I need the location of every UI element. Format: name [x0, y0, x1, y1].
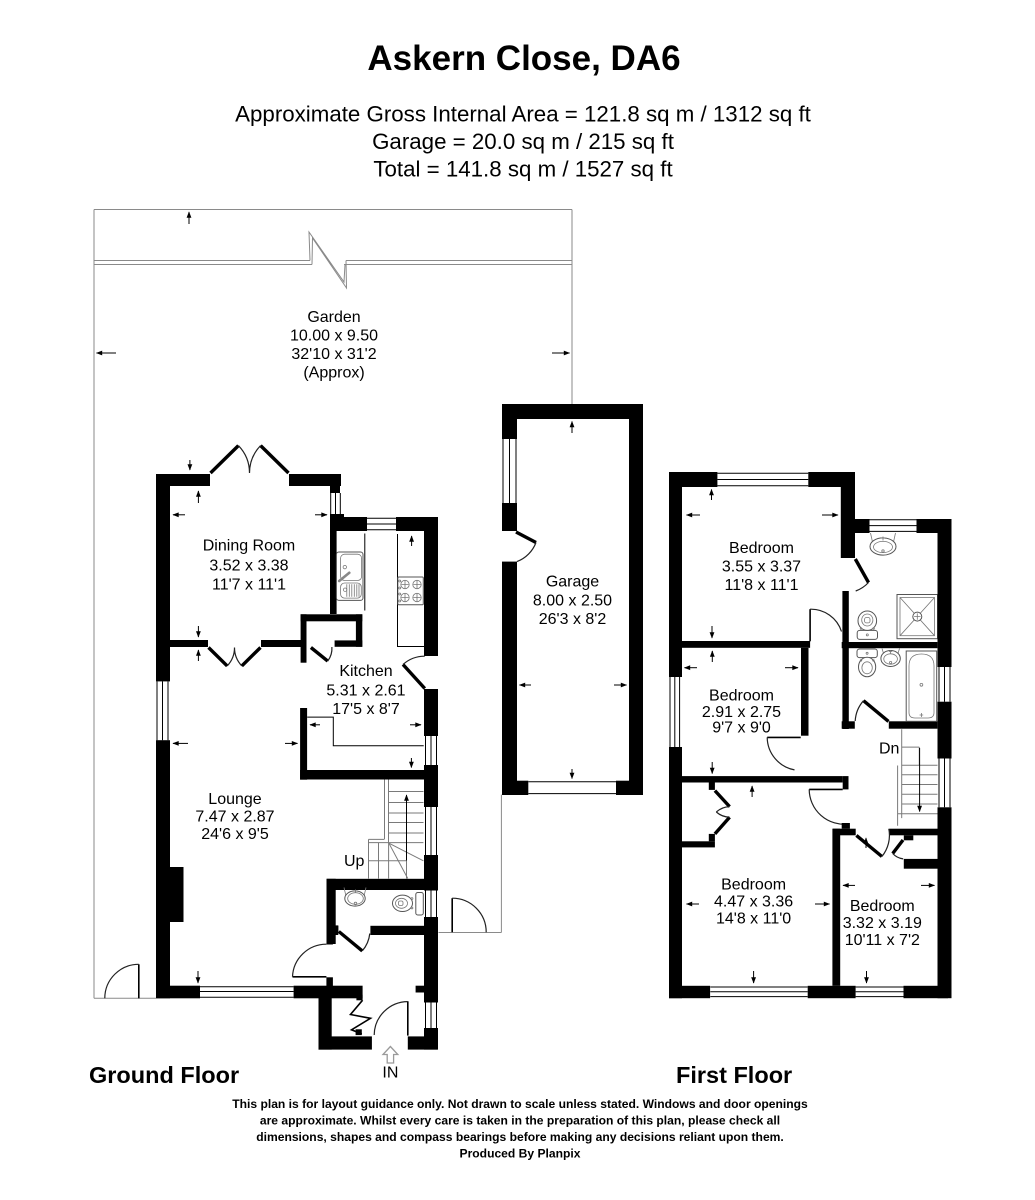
svg-text:17'5 x 8'7: 17'5 x 8'7 [332, 701, 400, 718]
svg-text:Garage: Garage [546, 574, 599, 591]
svg-text:Bedroom: Bedroom [721, 876, 786, 893]
svg-text:3.55 x 3.37: 3.55 x 3.37 [722, 558, 801, 575]
svg-text:Produced By Planpix: Produced By Planpix [460, 1147, 581, 1161]
svg-text:Lounge: Lounge [208, 791, 261, 808]
svg-text:8.00 x 2.50: 8.00 x 2.50 [533, 593, 612, 610]
svg-text:dimensions, shapes and compass: dimensions, shapes and compass bearings … [256, 1130, 784, 1144]
svg-text:First Floor: First Floor [676, 1062, 792, 1088]
svg-text:3.32 x 3.19: 3.32 x 3.19 [843, 915, 922, 932]
svg-text:Total = 141.8 sq m / 1527 sq f: Total = 141.8 sq m / 1527 sq ft [373, 157, 673, 182]
svg-text:11'8 x 11'1: 11'8 x 11'1 [724, 577, 798, 594]
svg-text:7.47 x 2.87: 7.47 x 2.87 [195, 809, 274, 826]
svg-text:Bedroom: Bedroom [850, 898, 915, 915]
svg-text:Dn: Dn [879, 741, 899, 758]
svg-text:9'7 x 9'0: 9'7 x 9'0 [712, 720, 771, 737]
svg-text:24'6 x 9'5: 24'6 x 9'5 [201, 826, 269, 843]
svg-text:Bedroom: Bedroom [709, 688, 774, 705]
svg-text:Garage = 20.0 sq m / 215 sq ft: Garage = 20.0 sq m / 215 sq ft [372, 129, 675, 154]
svg-text:are approximate. Whilst every: are approximate. Whilst every care is ta… [260, 1114, 780, 1128]
svg-text:(Approx): (Approx) [303, 365, 364, 382]
svg-text:Garden: Garden [307, 309, 360, 326]
svg-text:IN: IN [382, 1065, 398, 1082]
svg-text:32'10 x 31'2: 32'10 x 31'2 [291, 346, 376, 363]
svg-text:10'11 x 7'2: 10'11 x 7'2 [845, 932, 920, 949]
svg-text:Askern Close, DA6: Askern Close, DA6 [367, 39, 680, 78]
svg-text:This plan is for layout guidan: This plan is for layout guidance only. N… [232, 1097, 808, 1111]
svg-text:5.31 x 2.61: 5.31 x 2.61 [326, 683, 405, 700]
svg-text:Up: Up [344, 853, 365, 870]
svg-text:Ground Floor: Ground Floor [89, 1062, 239, 1088]
svg-text:Bedroom: Bedroom [729, 540, 794, 557]
svg-text:11'7 x 11'1: 11'7 x 11'1 [212, 577, 286, 594]
svg-text:Dining Room: Dining Room [203, 538, 295, 555]
svg-text:Approximate Gross Internal Are: Approximate Gross Internal Area = 121.8 … [235, 102, 811, 127]
svg-text:14'8 x 11'0: 14'8 x 11'0 [716, 910, 791, 927]
svg-text:2.91 x 2.75: 2.91 x 2.75 [702, 704, 781, 721]
svg-text:26'3 x 8'2: 26'3 x 8'2 [539, 611, 607, 628]
svg-text:4.47 x 3.36: 4.47 x 3.36 [714, 893, 793, 910]
svg-text:10.00 x 9.50: 10.00 x 9.50 [290, 328, 378, 345]
svg-text:3.52 x 3.38: 3.52 x 3.38 [209, 558, 288, 575]
svg-text:Kitchen: Kitchen [339, 663, 392, 680]
